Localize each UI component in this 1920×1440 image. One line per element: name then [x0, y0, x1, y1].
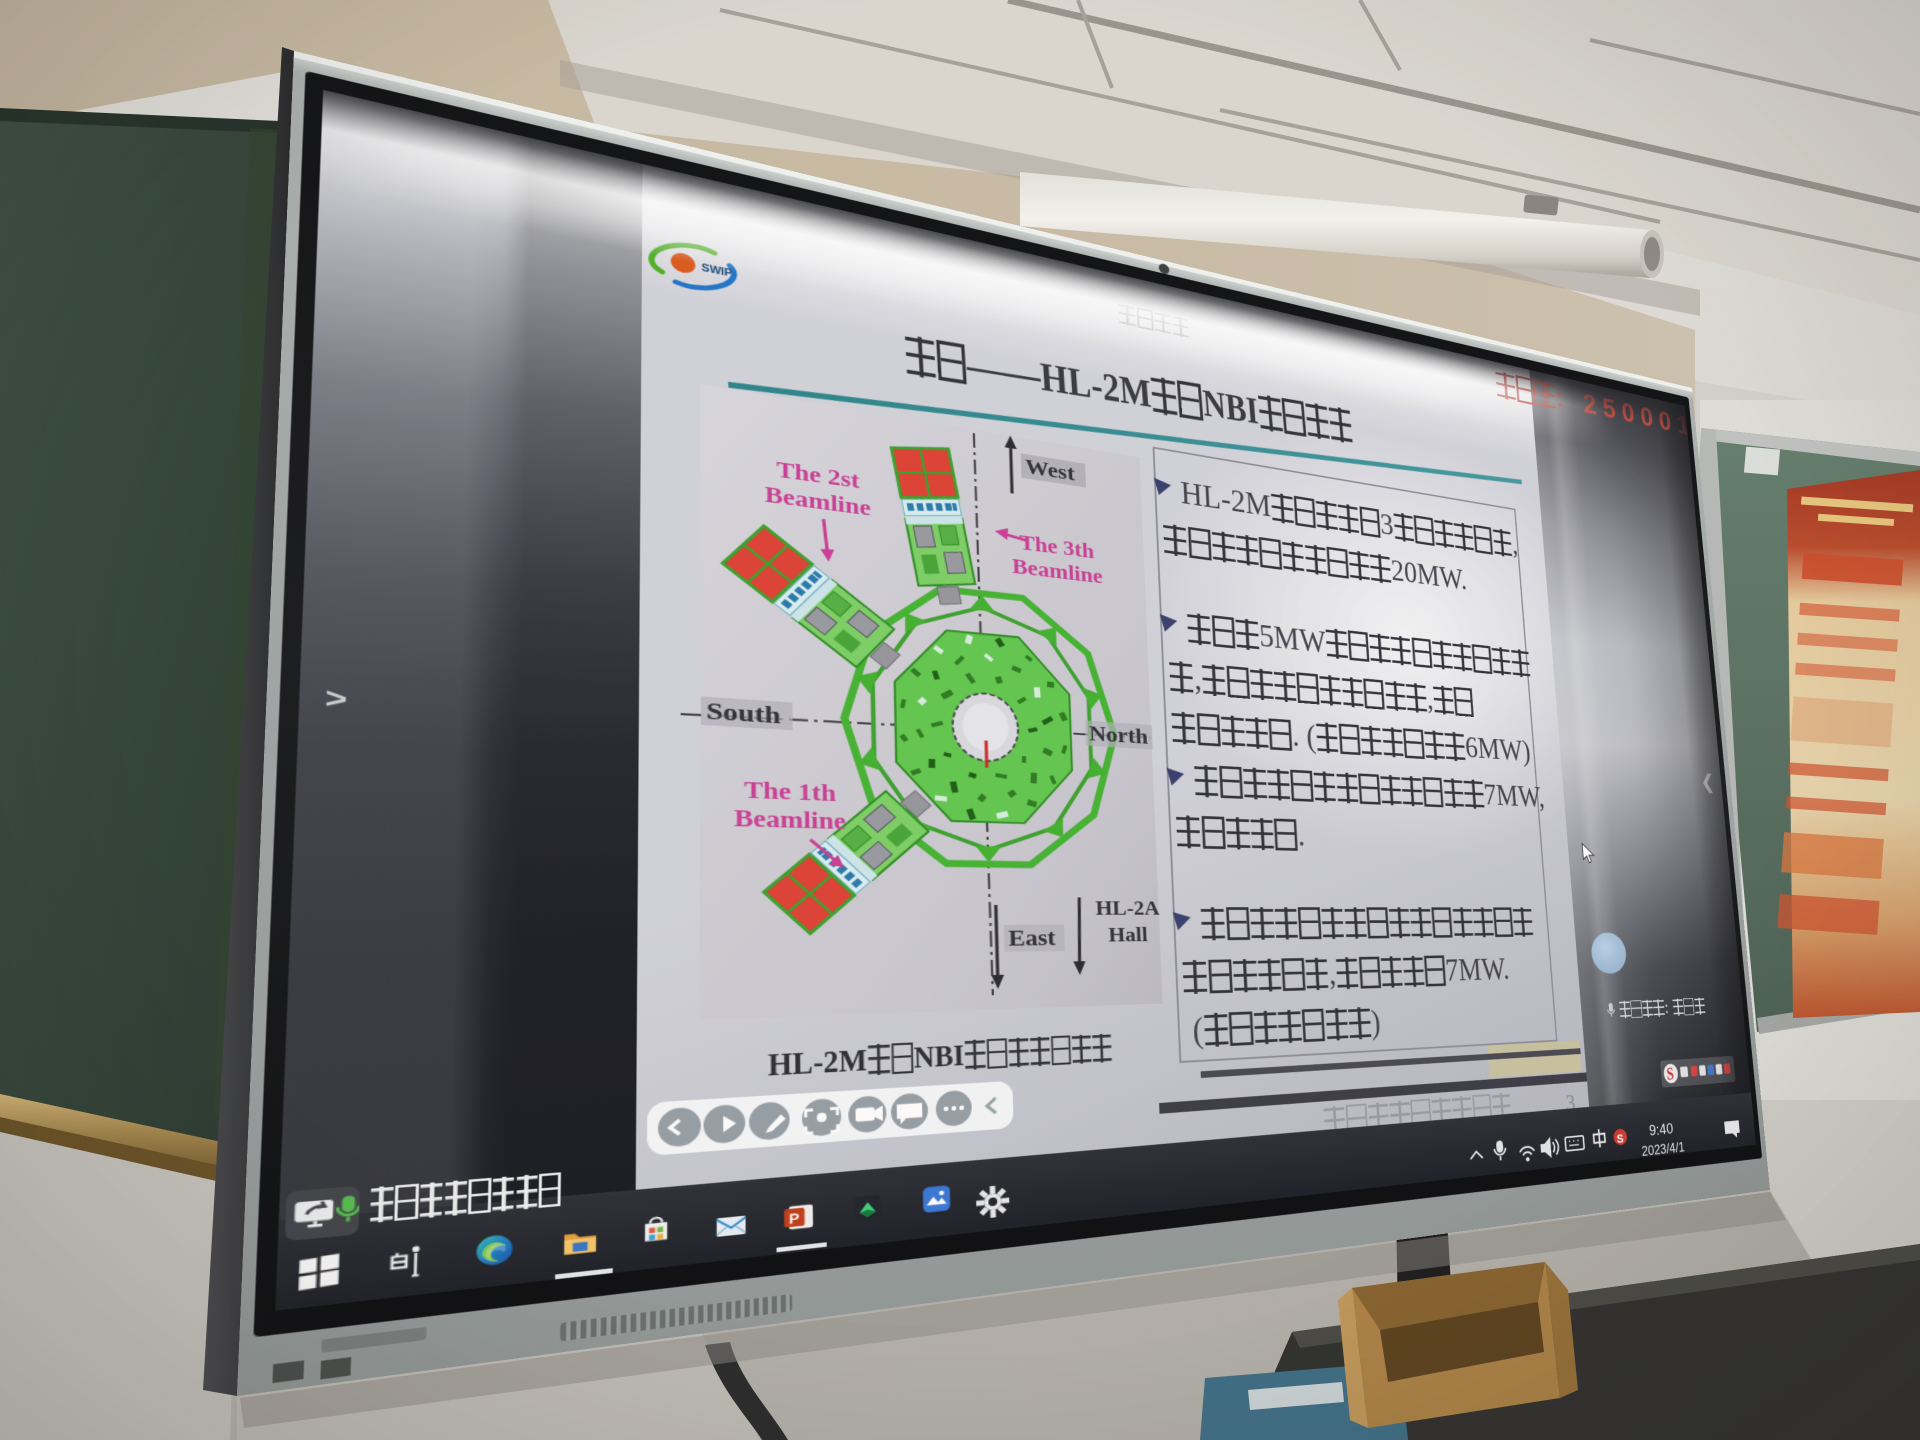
svg-text:9:40: 9:40	[1648, 1120, 1673, 1139]
svg-text:HL-2A: HL-2A	[1095, 896, 1160, 920]
svg-text:S: S	[1616, 1131, 1624, 1146]
svg-text:South: South	[706, 697, 780, 729]
svg-text:North: North	[1089, 721, 1149, 749]
svg-text:The 1th: The 1th	[744, 777, 836, 807]
svg-text:Beamline: Beamline	[734, 805, 846, 835]
svg-text:East: East	[1008, 925, 1056, 951]
svg-text:P: P	[789, 1210, 800, 1227]
svg-text:Hall: Hall	[1108, 922, 1148, 946]
